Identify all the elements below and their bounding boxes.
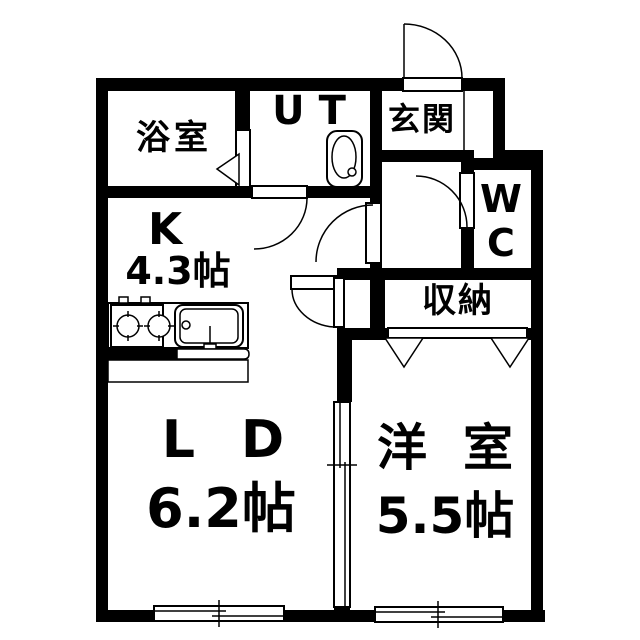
closet-folding-door — [385, 328, 529, 367]
storage-room-label: 収納 — [420, 284, 494, 318]
living-room-size: 6.2帖 — [146, 482, 296, 536]
ld-window — [154, 600, 284, 627]
western-room-size: 5.5帖 — [376, 491, 515, 541]
living-room-label: LD — [116, 414, 330, 466]
wall-hall-bottom — [337, 268, 543, 280]
hall-kitchen-door — [316, 203, 381, 263]
wall-kitchen-bottom — [96, 348, 177, 360]
wc-room-label-c: C — [487, 224, 515, 262]
wc-door — [416, 173, 474, 228]
wc-room-label-w: W — [480, 180, 522, 218]
wall-wc-top — [463, 158, 537, 170]
washbasin-icon — [327, 131, 362, 187]
bath-room-label: 浴室 — [132, 121, 212, 155]
utility-door — [252, 186, 307, 249]
wall-right — [531, 150, 543, 622]
utility-room-label: UT — [258, 91, 360, 131]
kitchen-room-label: K — [148, 208, 182, 252]
wall-bath-right — [235, 87, 250, 132]
kitchen-room-size: 4.3帖 — [125, 252, 230, 290]
wall-bath-bottom — [96, 186, 252, 198]
western-room-label: 洋室 — [341, 423, 549, 473]
wall-hall-left — [370, 78, 382, 205]
wall-ld-western-lower — [334, 607, 350, 622]
floor-plan: 浴室 UT 玄関 W C 収納 K 4.3帖 LD 6.2帖 洋室 5.5帖 — [0, 0, 640, 640]
wall-entrance-right — [493, 78, 505, 162]
wall-storage-left — [370, 278, 385, 328]
kitchen-unit — [108, 297, 248, 349]
sink-icon — [175, 305, 243, 349]
western-window — [375, 601, 503, 628]
bath-door — [217, 130, 250, 187]
wall-ld-western-upper — [337, 328, 352, 402]
kitchen-ld-door — [291, 276, 344, 327]
wall-entrance-bottom — [370, 150, 463, 162]
entrance-room-label: 玄関 — [386, 103, 456, 135]
entrance-door — [403, 24, 462, 91]
